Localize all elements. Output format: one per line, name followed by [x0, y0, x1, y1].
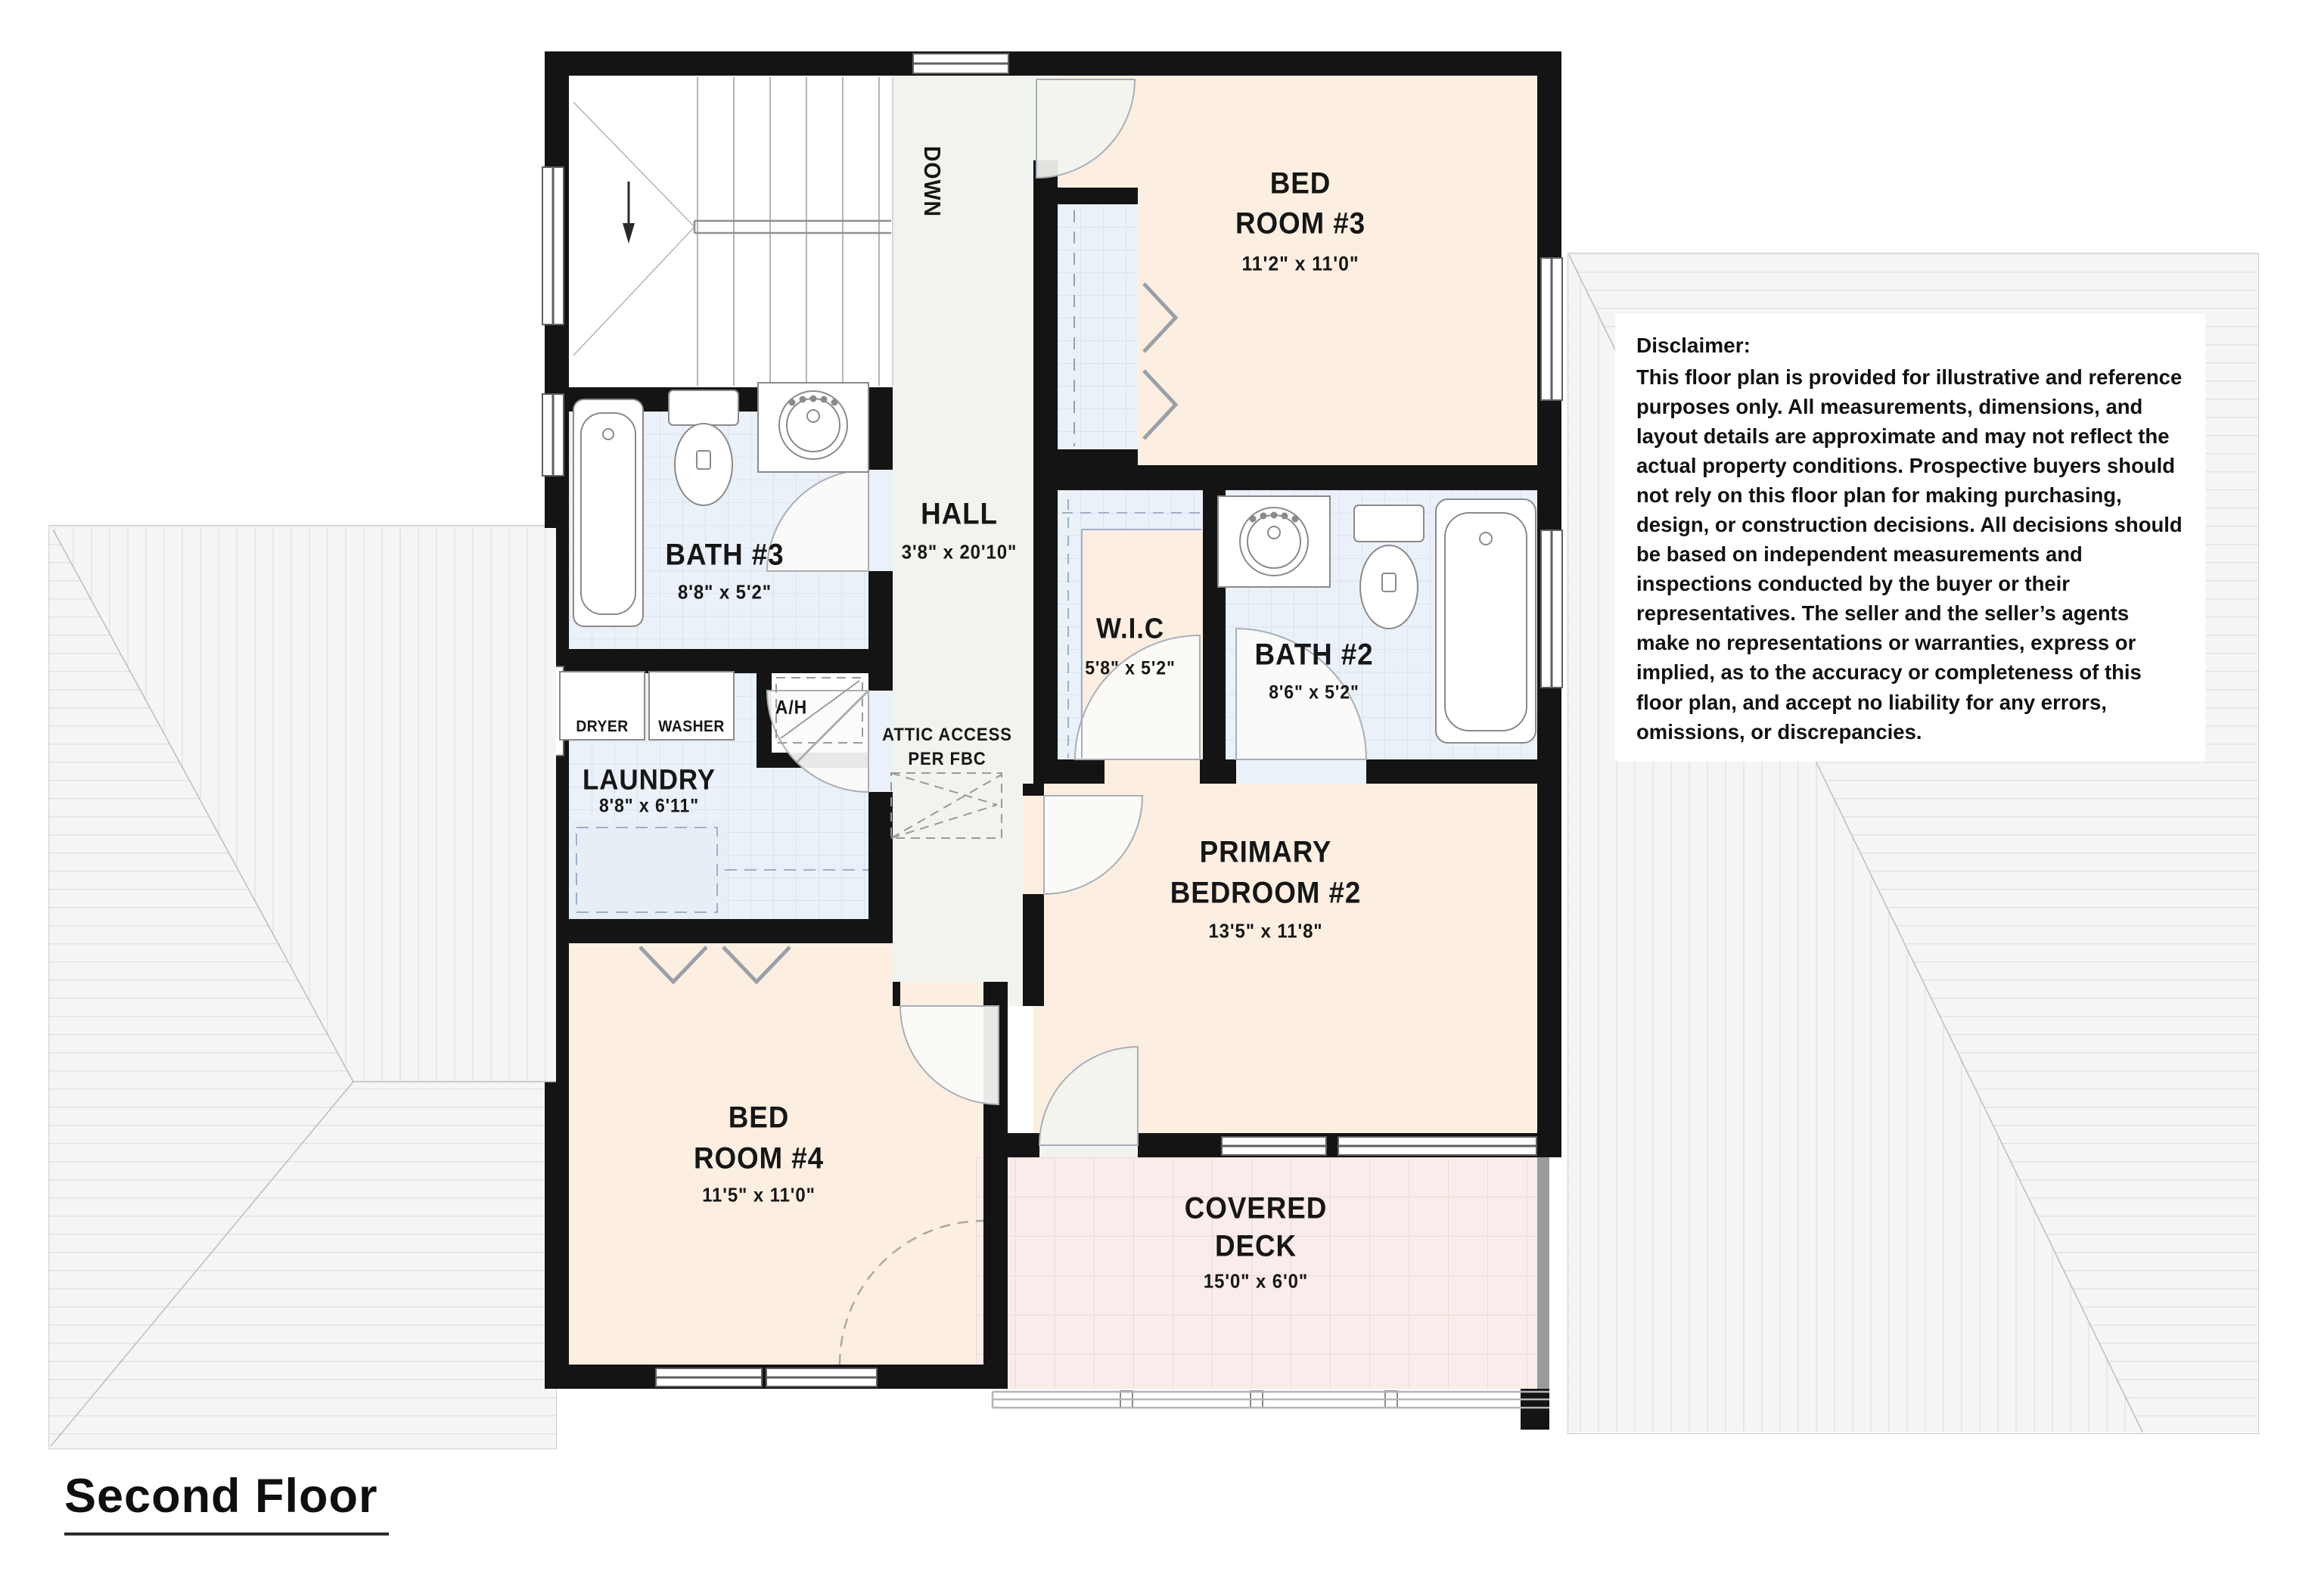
laundry-dims-visible: 8'8" x 6'11" — [599, 796, 699, 818]
opening-bath3-door — [868, 470, 893, 571]
opening-bed3-door — [1033, 76, 1058, 160]
bedroom-3-closet — [1058, 204, 1138, 449]
bathroom-2 — [1226, 490, 1537, 759]
wall-bed3-south — [1033, 465, 1537, 490]
window-primary-deck-b — [1338, 1136, 1537, 1156]
deck-edge — [1537, 1157, 1549, 1389]
opening-primary-door — [1023, 796, 1044, 894]
wall-closet-stub-top — [1058, 188, 1138, 204]
wic-dims: 5'8" x 5'2" — [1085, 658, 1176, 680]
window-bed4-a — [655, 1368, 763, 1387]
deck-dims: 15'0" x 6'0" — [1204, 1270, 1308, 1293]
wall-ah-bottom — [757, 753, 868, 768]
window-left-stair — [542, 166, 564, 325]
opening-wic-door — [1105, 759, 1200, 784]
window-right-bath2 — [1540, 529, 1563, 688]
deck-label-line1: COVERED — [1185, 1192, 1327, 1226]
down-label: DOWN — [918, 146, 946, 217]
bathroom-3 — [569, 411, 868, 649]
floor-plan: BED ROOM #3 11'2" x 11'0" BATH #3 8'8" x… — [0, 0, 2324, 1593]
disclaimer-title: Disclaimer: — [1636, 334, 2184, 358]
primary-label-line1: PRIMARY — [1200, 836, 1332, 870]
wall-bed4-east — [983, 1006, 1008, 1389]
bedroom3-label-line1: BED — [1270, 167, 1331, 201]
attic-access-line1: ATTIC ACCESS — [882, 725, 1012, 746]
deck-rail-post-1 — [1120, 1390, 1133, 1408]
wall-wic-bath2 — [1203, 490, 1226, 759]
window-left-laundry — [542, 666, 564, 756]
bath3-dims: 8'8" x 5'2" — [678, 581, 772, 604]
window-left-bath3 — [542, 393, 564, 477]
attic-access-line2: PER FBC — [908, 749, 986, 770]
window-bed4-b — [766, 1368, 878, 1387]
bath2-label: BATH #2 — [1254, 638, 1373, 672]
opening-bath2-door — [1236, 759, 1366, 784]
bath3-label: BATH #3 — [665, 539, 784, 573]
hall-label: HALL — [921, 498, 998, 532]
deck-rail-post-2 — [1250, 1390, 1263, 1408]
ah-label: A/H — [775, 697, 807, 719]
washer-label: WASHER — [658, 718, 725, 736]
wall-top — [545, 51, 1561, 76]
page-title: Second Floor — [64, 1469, 389, 1536]
opening-deck-door — [1039, 1133, 1138, 1157]
dryer-label: DRYER — [576, 718, 628, 736]
hall-dims: 3'8" x 20'10" — [902, 541, 1017, 564]
window-primary-deck-a — [1221, 1136, 1327, 1156]
primary-label-line2: BEDROOM #2 — [1170, 877, 1362, 911]
disclaimer-body: This floor plan is provided for illustra… — [1636, 362, 2184, 747]
deck-label-line2: DECK — [1215, 1230, 1297, 1264]
wall-laundry-bed4 — [545, 919, 893, 943]
bath2-dims: 8'6" x 5'2" — [1269, 682, 1359, 704]
deck-corner-post — [1521, 1389, 1549, 1430]
roof-left — [49, 526, 556, 1449]
bedroom4-label-line1: BED — [729, 1101, 789, 1135]
wall-bed3-west — [1033, 160, 1058, 490]
bedroom3-dims: 11'2" x 11'0" — [1241, 253, 1359, 276]
bedroom3-label-line2: ROOM #3 — [1235, 207, 1366, 241]
stairwell — [569, 76, 893, 387]
bedroom4-dims: 11'5" x 11'0" — [702, 1184, 816, 1207]
bedroom4-label-line2: ROOM #4 — [694, 1142, 824, 1176]
disclaimer-box: Disclaimer: This floor plan is provided … — [1615, 314, 2205, 762]
wall-stair-bath3 — [545, 387, 893, 411]
deck-rail-post-3 — [1384, 1390, 1398, 1408]
wall-closet-stub-bottom — [1058, 449, 1138, 465]
wall-bath3-laundry — [545, 649, 893, 673]
primary-dims: 13'5" x 11'8" — [1208, 920, 1322, 943]
window-top-hall — [912, 53, 1009, 74]
window-right-bed3 — [1540, 257, 1563, 401]
deck-railing — [993, 1392, 1549, 1408]
wall-wic-west — [1033, 490, 1058, 784]
wic-label: W.I.C — [1096, 613, 1164, 646]
laundry-counter — [569, 821, 725, 919]
laundry-label: LAUNDRY — [583, 765, 716, 797]
opening-bed4-door — [900, 982, 983, 1006]
